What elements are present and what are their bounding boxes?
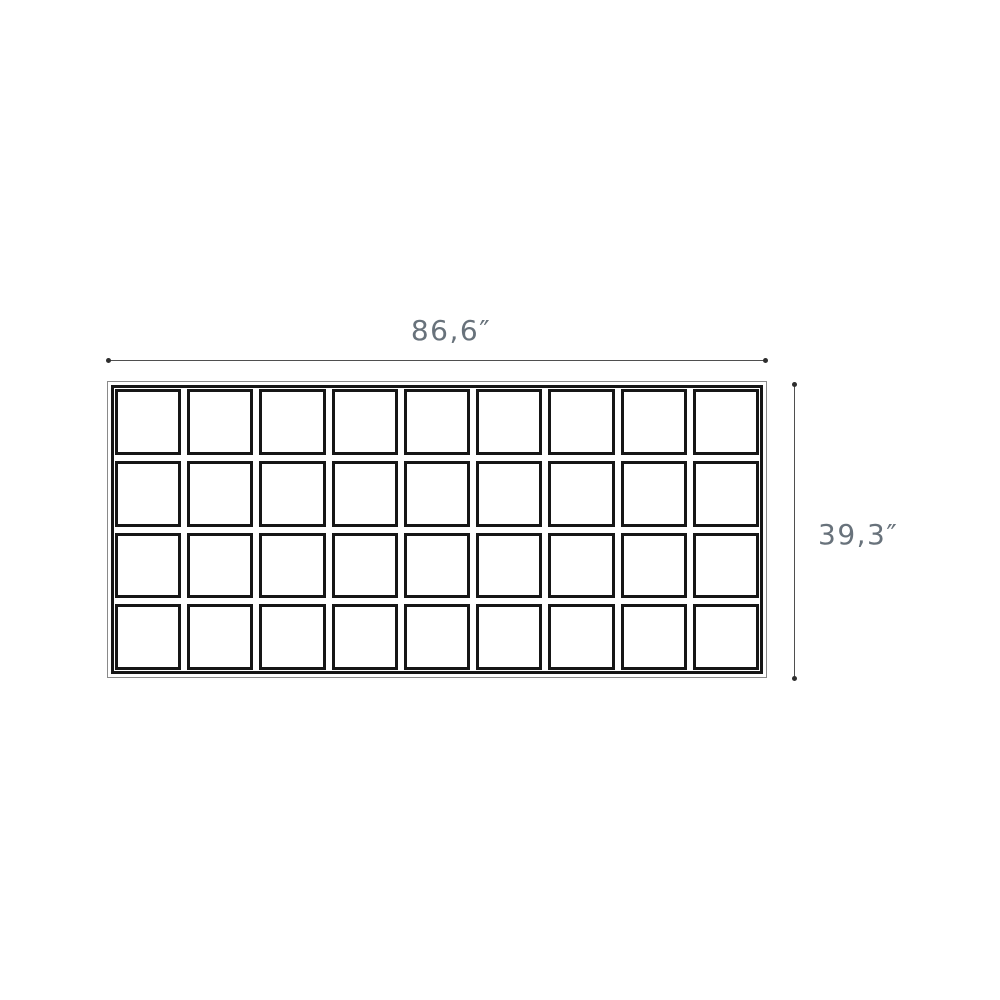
grid-cell [476,533,542,599]
dimension-endpoint-dot-icon [106,358,111,363]
grid-cell [621,389,687,455]
grid-cell [693,461,759,527]
grid-cell [621,461,687,527]
grid-cell [332,604,398,670]
grid-cell [476,604,542,670]
width-dimension-label: 86,6″ [108,314,766,347]
dimension-endpoint-dot-icon [792,382,797,387]
grid-cell [187,389,253,455]
grid-cell [259,604,325,670]
grid-cell [259,389,325,455]
grid-cell [187,533,253,599]
panel-outline [107,381,767,678]
grid-cell [259,533,325,599]
grid-cell [693,533,759,599]
grid-cell [548,389,614,455]
trellis-grid [111,385,763,674]
dimension-drawing-canvas: 86,6″ 39,3″ [0,0,1000,1000]
grid-cell [404,461,470,527]
dimension-endpoint-dot-icon [792,676,797,681]
grid-cell [476,389,542,455]
grid-cell [621,604,687,670]
grid-cell [548,604,614,670]
grid-cell [548,461,614,527]
grid-cell [693,389,759,455]
grid-cell [693,604,759,670]
grid-cell [332,389,398,455]
height-dimension-line [794,384,795,679]
grid-cell [404,533,470,599]
grid-cell [332,533,398,599]
width-dimension-line [108,360,766,361]
grid-cell [404,389,470,455]
grid-cell [115,389,181,455]
grid-cell [187,461,253,527]
grid-cell [621,533,687,599]
grid-cell [115,604,181,670]
grid-cell [404,604,470,670]
height-dimension-label: 39,3″ [818,518,898,551]
grid-cell [115,461,181,527]
grid-cell [332,461,398,527]
grid-cell [115,533,181,599]
grid-cell [187,604,253,670]
grid-cell [476,461,542,527]
grid-cell [259,461,325,527]
dimension-endpoint-dot-icon [763,358,768,363]
grid-cell [548,533,614,599]
